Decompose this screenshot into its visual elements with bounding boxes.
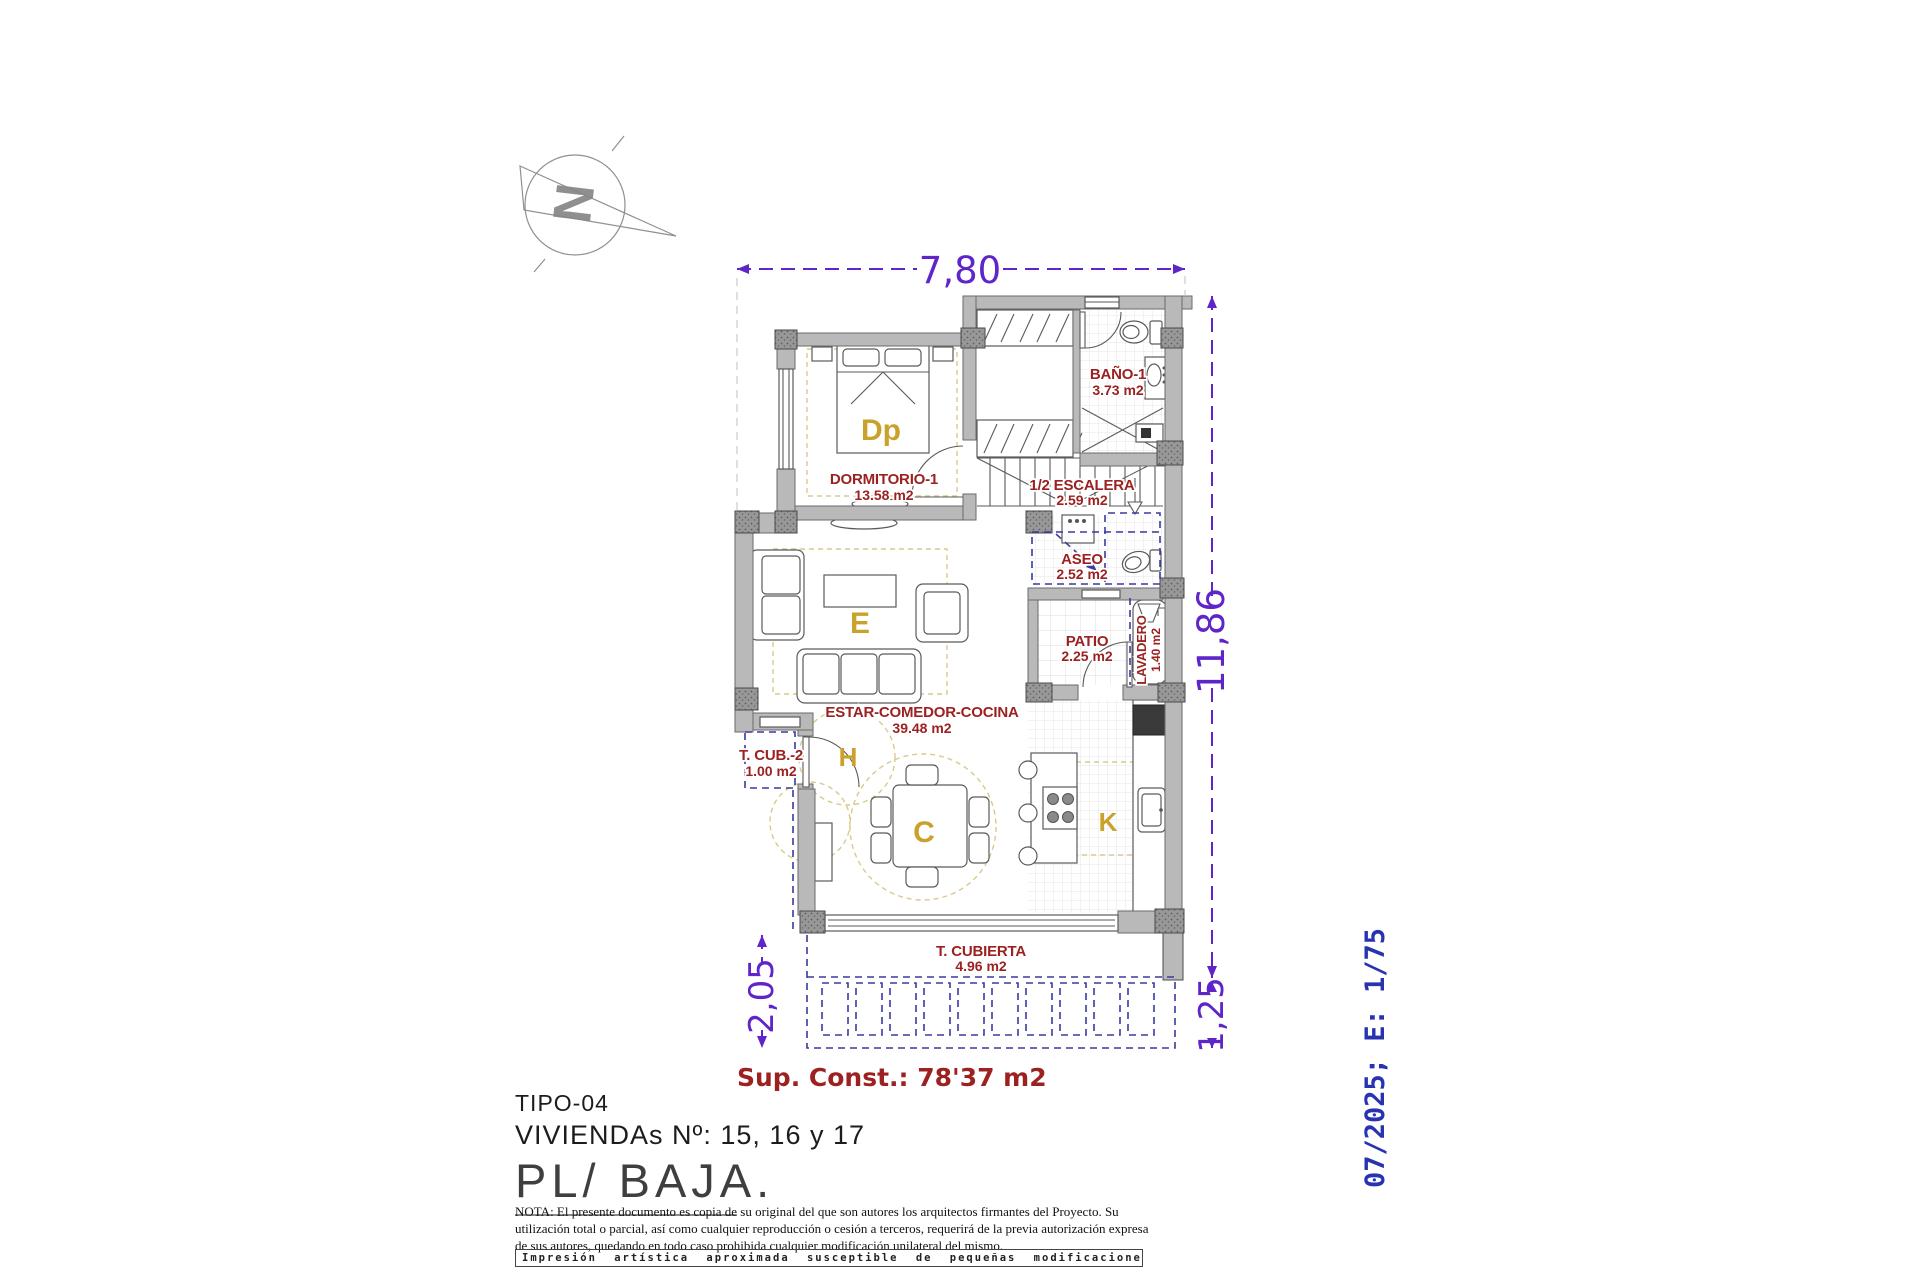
label-bano: BAÑO-1 [1090,365,1146,383]
dim-porch-right: 1,25 [1192,977,1232,1053]
label-lavadero: LAVADERO [1134,615,1149,685]
label-dormitorio: DORMITORIO-1 [830,471,938,488]
dwellings-label: VIVIENDAs Nº: 15, 16 y 17 [515,1120,865,1151]
dim-right: 11,86 [1190,588,1233,694]
label-estar: ESTAR-COMEDOR-COCINA [825,704,1019,721]
area-escalera: 2.59 m2 [1056,492,1108,508]
floor-title: PL/ BAJA. [515,1153,865,1208]
area-estar: 39.48 m2 [892,720,951,736]
floor-plan-sheet: N [0,0,1920,1280]
letter-c: C [913,816,935,849]
sup-const-label: Sup. Const.: 78'37 m2 [737,1063,1047,1092]
area-patio: 2.25 m2 [1061,648,1113,664]
letter-e: E [850,607,870,640]
area-aseo: 2.52 m2 [1056,566,1108,582]
dim-top: 7,80 [919,249,1001,292]
legal-note: NOTA: El presente documento es copia de … [515,1203,1149,1254]
title-block: TIPO-04 VIVIENDAs Nº: 15, 16 y 17 PL/ BA… [515,1090,865,1216]
dim-porch-depth: 2,05 [742,958,782,1034]
area-dormitorio: 13.58 m2 [854,487,913,503]
label-tcub2: T. CUB.-2 [739,747,803,764]
area-tcubierta: 4.96 m2 [955,958,1007,974]
area-lavadero: 1.40 m2 [1149,628,1163,672]
compass-north-letter: N [541,180,605,226]
letter-k: K [1099,807,1118,837]
impression-disclaimer: Impresión artística aproximada susceptib… [515,1249,1143,1267]
date-scale-stamp: 07/2025; E: 1/75 [1360,928,1391,1188]
area-bano: 3.73 m2 [1092,382,1144,398]
north-compass-icon: N [520,136,676,272]
area-tcub2: 1.00 m2 [745,763,797,779]
type-label: TIPO-04 [515,1090,865,1117]
floor-plan-drawing: N [0,0,1920,1280]
letter-h: H [839,742,858,772]
letter-dp: Dp [861,414,901,447]
